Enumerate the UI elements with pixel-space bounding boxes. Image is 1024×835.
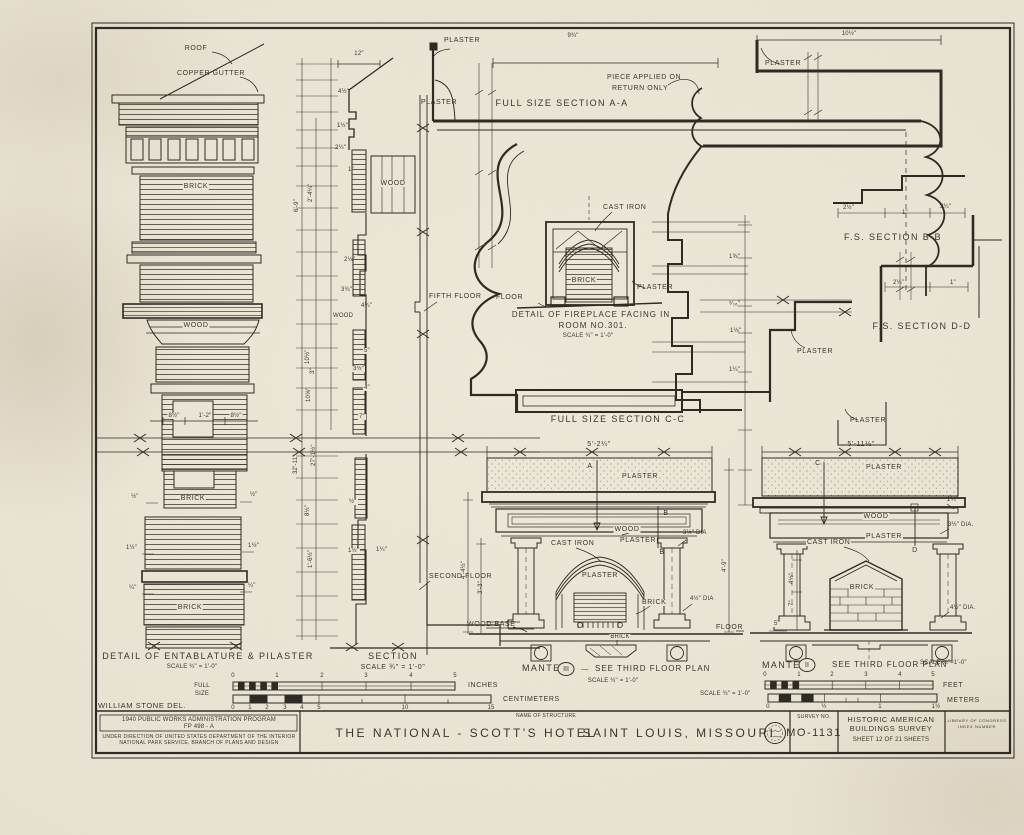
tick: 1½: [932, 704, 941, 710]
dim-bb-top: 10½": [842, 31, 857, 37]
program-line-2: FP 498 - A: [184, 724, 214, 730]
label-wood-m2: WOOD: [863, 513, 890, 520]
sheet-info: SHEET 12 OF 21 SHEETS: [853, 737, 929, 743]
dim-m3-left1: 4'-4½": [461, 561, 467, 579]
caption-fireplace-1: DETAIL OF FIREPLACE FACING IN: [512, 311, 670, 319]
marker-b1: B: [663, 510, 668, 517]
label-meters: METERS: [947, 697, 980, 704]
label-plaster-m2-wall: PLASTER: [865, 533, 903, 540]
caption-mantel3-dash: —: [581, 666, 589, 673]
label-inches: INCHES: [468, 682, 498, 689]
scale-pilaster: SCALE ¾" = 1'-0": [167, 664, 217, 670]
label-size: SIZE: [195, 691, 209, 697]
marker-d: D: [912, 547, 918, 554]
tick: 1: [248, 705, 252, 711]
tick: 3: [864, 672, 868, 678]
tick: 0: [231, 673, 235, 679]
dim: 7": [358, 414, 366, 420]
caption-pilaster-detail: DETAIL OF ENTABLATURE & PILASTER: [102, 652, 314, 661]
label-cast-iron-m2: CAST IRON: [806, 539, 851, 546]
dim-32-11: 32'-11": [293, 454, 299, 474]
dim: ⁵⁄₁₆": [729, 301, 740, 307]
dim: 1": [348, 167, 354, 173]
name-of-structure-label: NAME OF STRUCTURE: [516, 714, 576, 719]
dim-m2-41: 4⅛": [789, 573, 795, 584]
mantel3-numeral: III: [558, 662, 575, 676]
dim-27-1: 27'-1½": [311, 444, 317, 466]
caption-section-aa: FULL SIZE SECTION A-A: [495, 99, 628, 108]
dim: 2½": [843, 205, 854, 211]
label-plaster-fireplace: PLASTER: [637, 284, 673, 291]
survey-no-label: SURVEY NO.: [797, 715, 831, 720]
label-plaster-cc-upper: PLASTER: [797, 348, 833, 355]
loc-line-1: LIBRARY OF CONGRESS: [947, 719, 1006, 723]
tick: 10: [401, 705, 408, 711]
caption-section-bb: F.S. SECTION B-B: [844, 233, 942, 242]
label-wood-section: WOOD: [380, 180, 407, 187]
label-centimeters: CENTIMETERS: [503, 696, 560, 703]
structure-city: SAINT LOUIS, MISSOURI: [583, 727, 776, 739]
structure-name: THE NATIONAL - SCOTT'S HOTEL: [336, 727, 597, 739]
dim: 3": [310, 368, 316, 374]
tick: 1: [275, 673, 279, 679]
label-brick-m3-plan: BRICK: [609, 634, 630, 640]
scale-note: SCALE ¾" = 1'-0": [700, 691, 750, 697]
dim: 1": [902, 210, 908, 216]
dim-pilaster-center: 1'-2": [198, 413, 213, 419]
dim: ½": [131, 494, 139, 500]
label-plaster-cc-lower: PLASTER: [850, 417, 886, 424]
dim-8h: 8½": [305, 505, 311, 516]
tick: 5: [931, 672, 935, 678]
label-plaster-section: PLASTER: [421, 99, 457, 106]
dim: 2⅛": [344, 257, 355, 263]
tick: 3: [283, 705, 287, 711]
label-full: FULL: [194, 683, 209, 689]
label-floor-m3: FLOOR: [716, 624, 743, 631]
scale-fireplace: SCALE ¾" = 1'-0": [563, 333, 613, 339]
survey-no-value: MO-1131: [786, 728, 842, 739]
dim: 3¾": [341, 287, 352, 293]
label-plaster-m2-top: PLASTER: [865, 464, 903, 471]
label-wood-2: WOOD: [333, 313, 353, 319]
label-brick-low: BRICK: [177, 604, 203, 611]
note-piece-applied-1: PIECE APPLIED ON: [607, 74, 681, 81]
dim-m2-quarter: 1¼": [947, 497, 958, 503]
marker-a: A: [587, 463, 592, 470]
note-piece-applied-2: RETURN ONLY: [612, 85, 668, 92]
label-brick-m3: BRICK: [641, 599, 667, 606]
dim: 5": [363, 348, 371, 354]
dim: 1½": [337, 123, 348, 129]
label-copper-gutter: COPPER GUTTER: [177, 70, 245, 77]
label-roof: ROOF: [185, 45, 208, 52]
scale-section: SCALE ¾" = 1'-0": [361, 664, 426, 671]
dim: 4½": [338, 89, 349, 95]
dim: 4¼": [361, 303, 372, 309]
label-plaster-m3-wall: PLASTER: [619, 537, 657, 544]
dim-m3-right: 4'-9": [722, 559, 728, 572]
label-floor-fireplace: FLOOR: [496, 294, 523, 301]
dim-10e: 10⅝": [306, 387, 312, 402]
caption-fireplace-2: ROOM NO.301.: [559, 322, 628, 330]
dim: ¼": [248, 583, 256, 589]
tick: 3: [364, 673, 368, 679]
dim-pilaster-right: 8½": [229, 413, 242, 419]
dim-1-6: 1'-6½": [308, 550, 314, 568]
label-wood-m3: WOOD: [614, 526, 641, 533]
tick: 4: [300, 705, 304, 711]
scale-mantel2: SCALE ¾"=1'-0": [920, 660, 967, 666]
label-wood-capital: WOOD: [183, 322, 210, 329]
tick: 0: [766, 704, 770, 710]
dim: 2¼": [893, 280, 904, 286]
label-plaster-m3-top: PLASTER: [621, 473, 659, 480]
dim: 2¼": [940, 204, 951, 210]
tick: 0: [763, 672, 767, 678]
label-cast-iron-m3: CAST IRON: [550, 540, 595, 547]
dim: 3½": [352, 366, 365, 372]
caption-section-dd: F.S. SECTION D-D: [873, 322, 972, 331]
tick: 1: [878, 704, 882, 710]
label-cast-iron-fireplace: CAST IRON: [603, 204, 646, 211]
habs-drawing-sheet: ROOF COPPER GUTTER BRICK WOOD BRICK BRIC…: [0, 0, 1024, 835]
caption-mantel3-see: SEE THIRD FLOOR PLAN: [595, 665, 710, 673]
dim: 1": [950, 280, 956, 286]
program-line-1: 1940 PUBLIC WORKS ADMINISTRATION PROGRAM: [122, 717, 276, 723]
dim: 1½": [126, 545, 137, 551]
dim-m3-dia-top: 3½" DIA: [683, 530, 707, 536]
dim: 1½": [347, 548, 360, 554]
marker-b2: B: [659, 549, 664, 556]
label-fifth-floor: FIFTH FLOOR: [429, 293, 482, 300]
dim: 1¼": [376, 547, 387, 553]
dim-10h: 10½": [305, 349, 311, 364]
tick: 2: [320, 673, 324, 679]
label-brick-mid: BRICK: [180, 495, 206, 502]
tick: ½: [821, 704, 826, 710]
dim-m2-5: 5": [773, 621, 781, 627]
tick: 1: [797, 672, 801, 678]
dim-6-9: 6'-9": [294, 199, 300, 212]
dim: ½": [250, 492, 258, 498]
caption-section: SECTION: [368, 652, 418, 661]
label-brick-m2: BRICK: [849, 584, 875, 591]
tick: 2: [265, 705, 269, 711]
delineator-credit: WILLIAM STONE DEL.: [98, 702, 186, 710]
dim: 1⅛": [730, 328, 741, 334]
dim: ¼": [129, 585, 137, 591]
dim-m3-dia-bottom: 4½" DIA: [690, 596, 714, 602]
dim: 1½": [248, 543, 259, 549]
dim-m3-width: 5'-2¼": [587, 441, 610, 448]
dim-m2-7: 7": [789, 600, 795, 606]
label-brick-top: BRICK: [183, 183, 209, 190]
direction-line-2: NATIONAL PARK SERVICE, BRANCH OF PLANS A…: [119, 741, 278, 746]
dim: 1⅝": [729, 254, 740, 260]
label-plaster-aa: PLASTER: [444, 37, 480, 44]
scale-mantel3: SCALE ¾" = 1'-0": [588, 678, 638, 684]
dim-section-top: 12": [354, 51, 363, 57]
label-wood-base-m3: WOOD BASE: [467, 621, 516, 628]
dim-m2-dia-bottom: 4½" DIA.: [950, 605, 975, 611]
loc-line-2: INDEX NUMBER: [958, 725, 996, 729]
dim: 4": [363, 385, 371, 391]
dim: ½": [348, 499, 358, 505]
dim-m3-left2: 3'-3": [478, 581, 484, 594]
dim-2-4: 2'-4¼": [308, 184, 314, 202]
tick: 5: [453, 673, 457, 679]
tick: 0: [231, 705, 235, 711]
dim: 1¼": [729, 367, 740, 373]
habs-org-line-2: BUILDINGS SURVEY: [850, 725, 933, 733]
dim-m2-width: 5'-11½": [847, 441, 874, 448]
tick: 4: [898, 672, 902, 678]
habs-org-line-1: HISTORIC AMERICAN: [847, 716, 934, 724]
dim-pilaster-left: 8½": [167, 413, 180, 419]
label-plaster-m3-inner: PLASTER: [581, 572, 619, 579]
tick: 4: [409, 673, 413, 679]
tick: 5: [317, 705, 321, 711]
dim: 2¼": [335, 145, 346, 151]
label-brick-fireplace: BRICK: [571, 277, 597, 284]
label-plaster-bb: PLASTER: [765, 60, 801, 67]
label-feet: FEET: [943, 682, 963, 689]
mantel2-numeral: II: [799, 658, 816, 672]
marker-c: C: [815, 460, 821, 467]
dim-m2-dia-top: 3½" DIA.: [948, 522, 973, 528]
caption-section-cc: FULL SIZE SECTION C-C: [551, 415, 686, 424]
tick: 2: [830, 672, 834, 678]
tick: 15: [487, 705, 494, 711]
dim-aa-width: 9¾": [567, 33, 578, 39]
